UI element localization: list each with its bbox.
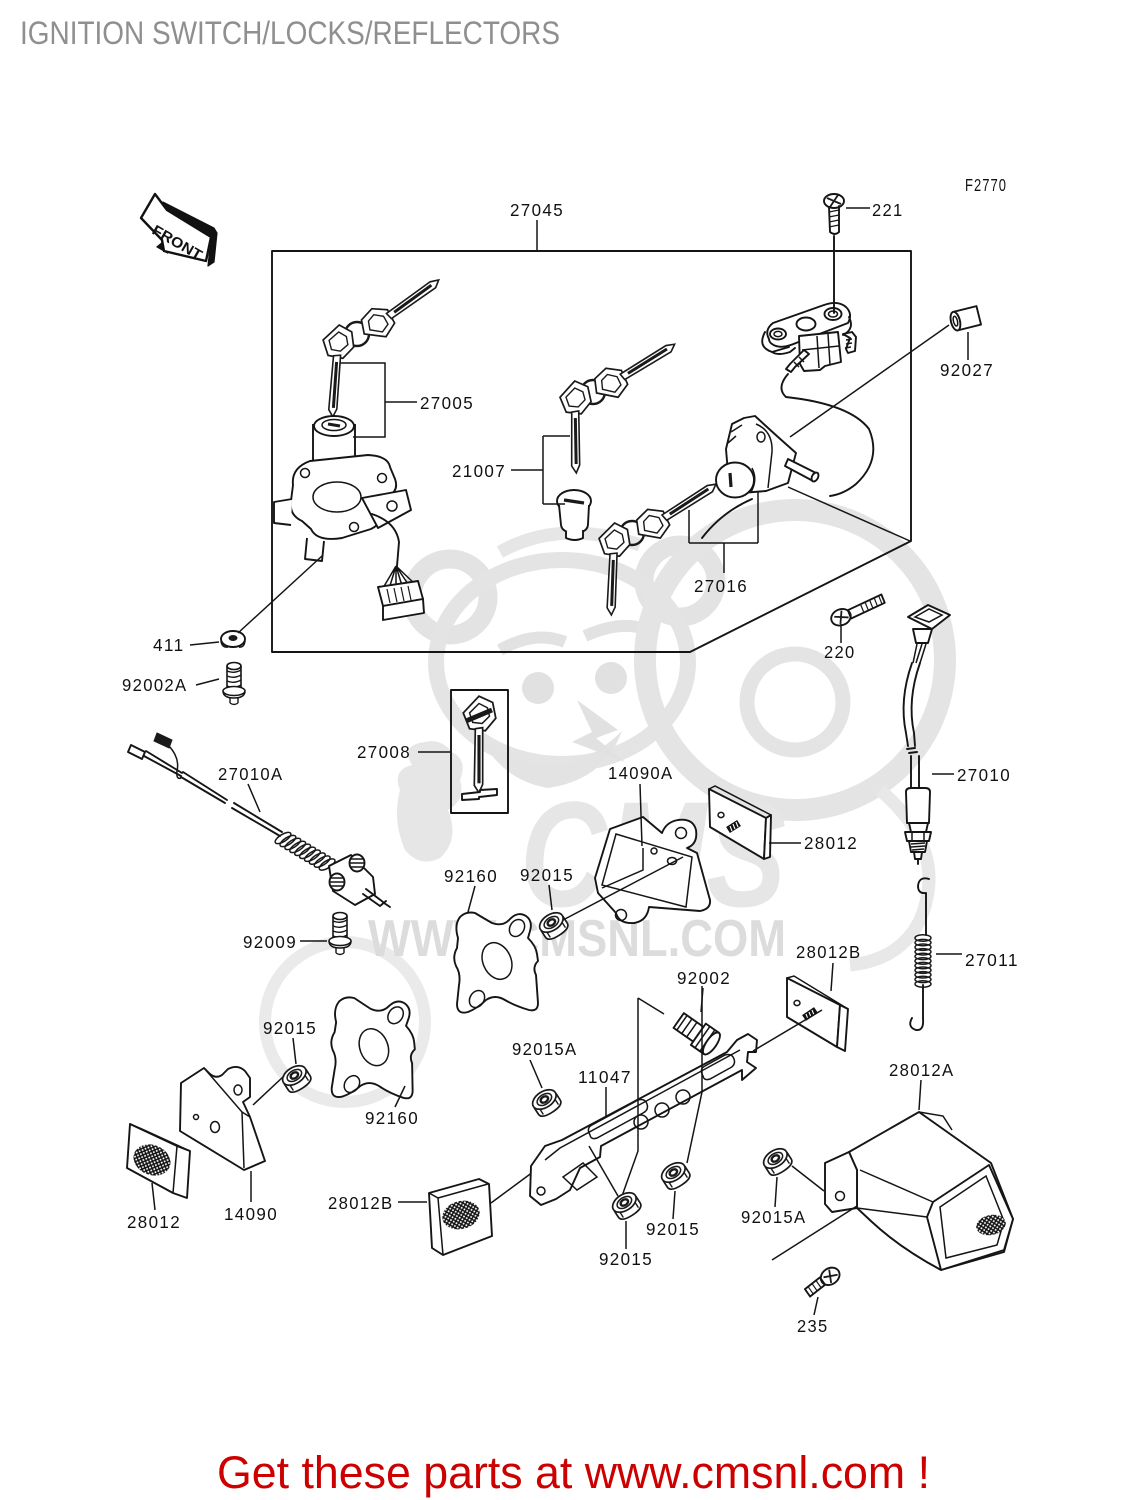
svg-text:WWW.CMSNL.COM: WWW.CMSNL.COM bbox=[368, 910, 786, 968]
svg-text:221: 221 bbox=[872, 200, 904, 220]
svg-text:92027: 92027 bbox=[940, 360, 994, 380]
svg-text:14090: 14090 bbox=[224, 1204, 278, 1224]
svg-text:92002: 92002 bbox=[677, 968, 731, 988]
svg-text:92009: 92009 bbox=[243, 932, 297, 952]
svg-text:235: 235 bbox=[797, 1316, 829, 1336]
svg-text:27011: 27011 bbox=[965, 950, 1019, 970]
svg-text:F2770: F2770 bbox=[965, 175, 1007, 195]
svg-text:28012B: 28012B bbox=[796, 942, 862, 962]
svg-text:92015A: 92015A bbox=[512, 1039, 578, 1059]
svg-text:IGNITION SWITCH/LOCKS/REFLECTO: IGNITION SWITCH/LOCKS/REFLECTORS bbox=[20, 15, 560, 51]
svg-text:27008: 27008 bbox=[357, 742, 411, 762]
svg-text:27005: 27005 bbox=[420, 393, 474, 413]
svg-text:92015A: 92015A bbox=[741, 1207, 807, 1227]
svg-text:92002A: 92002A bbox=[122, 675, 188, 695]
svg-text:92015: 92015 bbox=[599, 1249, 653, 1269]
svg-text:28012A: 28012A bbox=[889, 1060, 955, 1080]
svg-text:27010: 27010 bbox=[957, 765, 1011, 785]
svg-text:14090A: 14090A bbox=[608, 763, 674, 783]
svg-text:28012B: 28012B bbox=[328, 1193, 394, 1213]
svg-text:220: 220 bbox=[824, 642, 856, 662]
svg-text:27045: 27045 bbox=[510, 200, 564, 220]
svg-text:92015: 92015 bbox=[646, 1219, 700, 1239]
svg-text:Get these parts at www.cmsnl.c: Get these parts at www.cmsnl.com ! bbox=[217, 1447, 930, 1498]
svg-text:27016: 27016 bbox=[694, 576, 748, 596]
svg-text:28012: 28012 bbox=[127, 1212, 181, 1232]
svg-text:92015: 92015 bbox=[263, 1018, 317, 1038]
svg-text:411: 411 bbox=[153, 635, 185, 655]
svg-text:92015: 92015 bbox=[520, 865, 574, 885]
svg-text:21007: 21007 bbox=[452, 461, 506, 481]
svg-text:92160: 92160 bbox=[444, 866, 498, 886]
svg-text:11047: 11047 bbox=[578, 1067, 632, 1087]
svg-text:27010A: 27010A bbox=[218, 764, 284, 784]
svg-text:28012: 28012 bbox=[804, 833, 858, 853]
svg-text:92160: 92160 bbox=[365, 1108, 419, 1128]
